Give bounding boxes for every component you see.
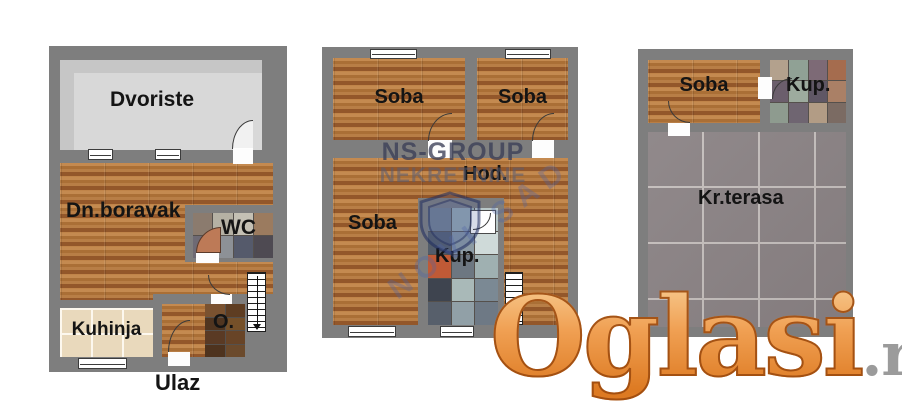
door-opening <box>211 294 232 304</box>
window-icon <box>370 49 417 59</box>
wall-segment <box>60 300 153 308</box>
room-label-soba: Soba <box>333 86 465 109</box>
watermark-agency-name: NS-GROUP <box>368 139 538 165</box>
stairs-icon <box>247 272 266 332</box>
room-soba-attic: Soba <box>648 60 760 123</box>
stairs-arrow-stem <box>257 276 258 325</box>
watermark-agency: NS-GROUP NEKRETNINE <box>368 139 538 187</box>
wall-segment <box>153 300 162 357</box>
room-label-courtyard: Dvoriste <box>110 88 194 112</box>
site-logo-tld: .rs <box>862 320 902 390</box>
room-label-terrace: Kr.terasa <box>698 187 784 210</box>
site-logo: Oglasi.rs <box>490 282 902 392</box>
room-label-living-room: Dn.boravak <box>66 199 180 223</box>
room-soba-top-right: Soba <box>477 58 568 140</box>
window-icon <box>155 149 181 160</box>
room-label-soba: Soba <box>648 74 760 97</box>
door-opening <box>758 77 772 99</box>
door-opening <box>168 352 190 366</box>
site-logo-text: Oglasi <box>490 272 862 401</box>
room-label-soba: Soba <box>348 212 397 235</box>
window-icon <box>78 358 127 369</box>
room-label-storage: O. <box>213 311 234 334</box>
room-label-bathroom: Kup. <box>786 74 830 97</box>
window-icon <box>440 326 474 337</box>
door-opening <box>668 123 690 136</box>
entrance-label: Ulaz <box>155 370 200 396</box>
plan-ground-floor: Dvoriste Dn.boravak WC <box>49 46 287 372</box>
door-opening <box>233 148 253 164</box>
window-icon <box>88 149 113 160</box>
floorplan-image: Dvoriste Dn.boravak WC <box>0 0 902 420</box>
room-label-soba: Soba <box>477 86 568 109</box>
room-courtyard: Dvoriste <box>60 60 262 150</box>
room-kitchen: Kuhinja <box>60 308 153 357</box>
window-icon <box>505 49 551 59</box>
room-label-kitchen: Kuhinja <box>60 319 153 341</box>
window-icon <box>348 326 396 337</box>
stairs-arrow-down <box>253 324 261 330</box>
room-label-wc: WC <box>221 216 256 240</box>
